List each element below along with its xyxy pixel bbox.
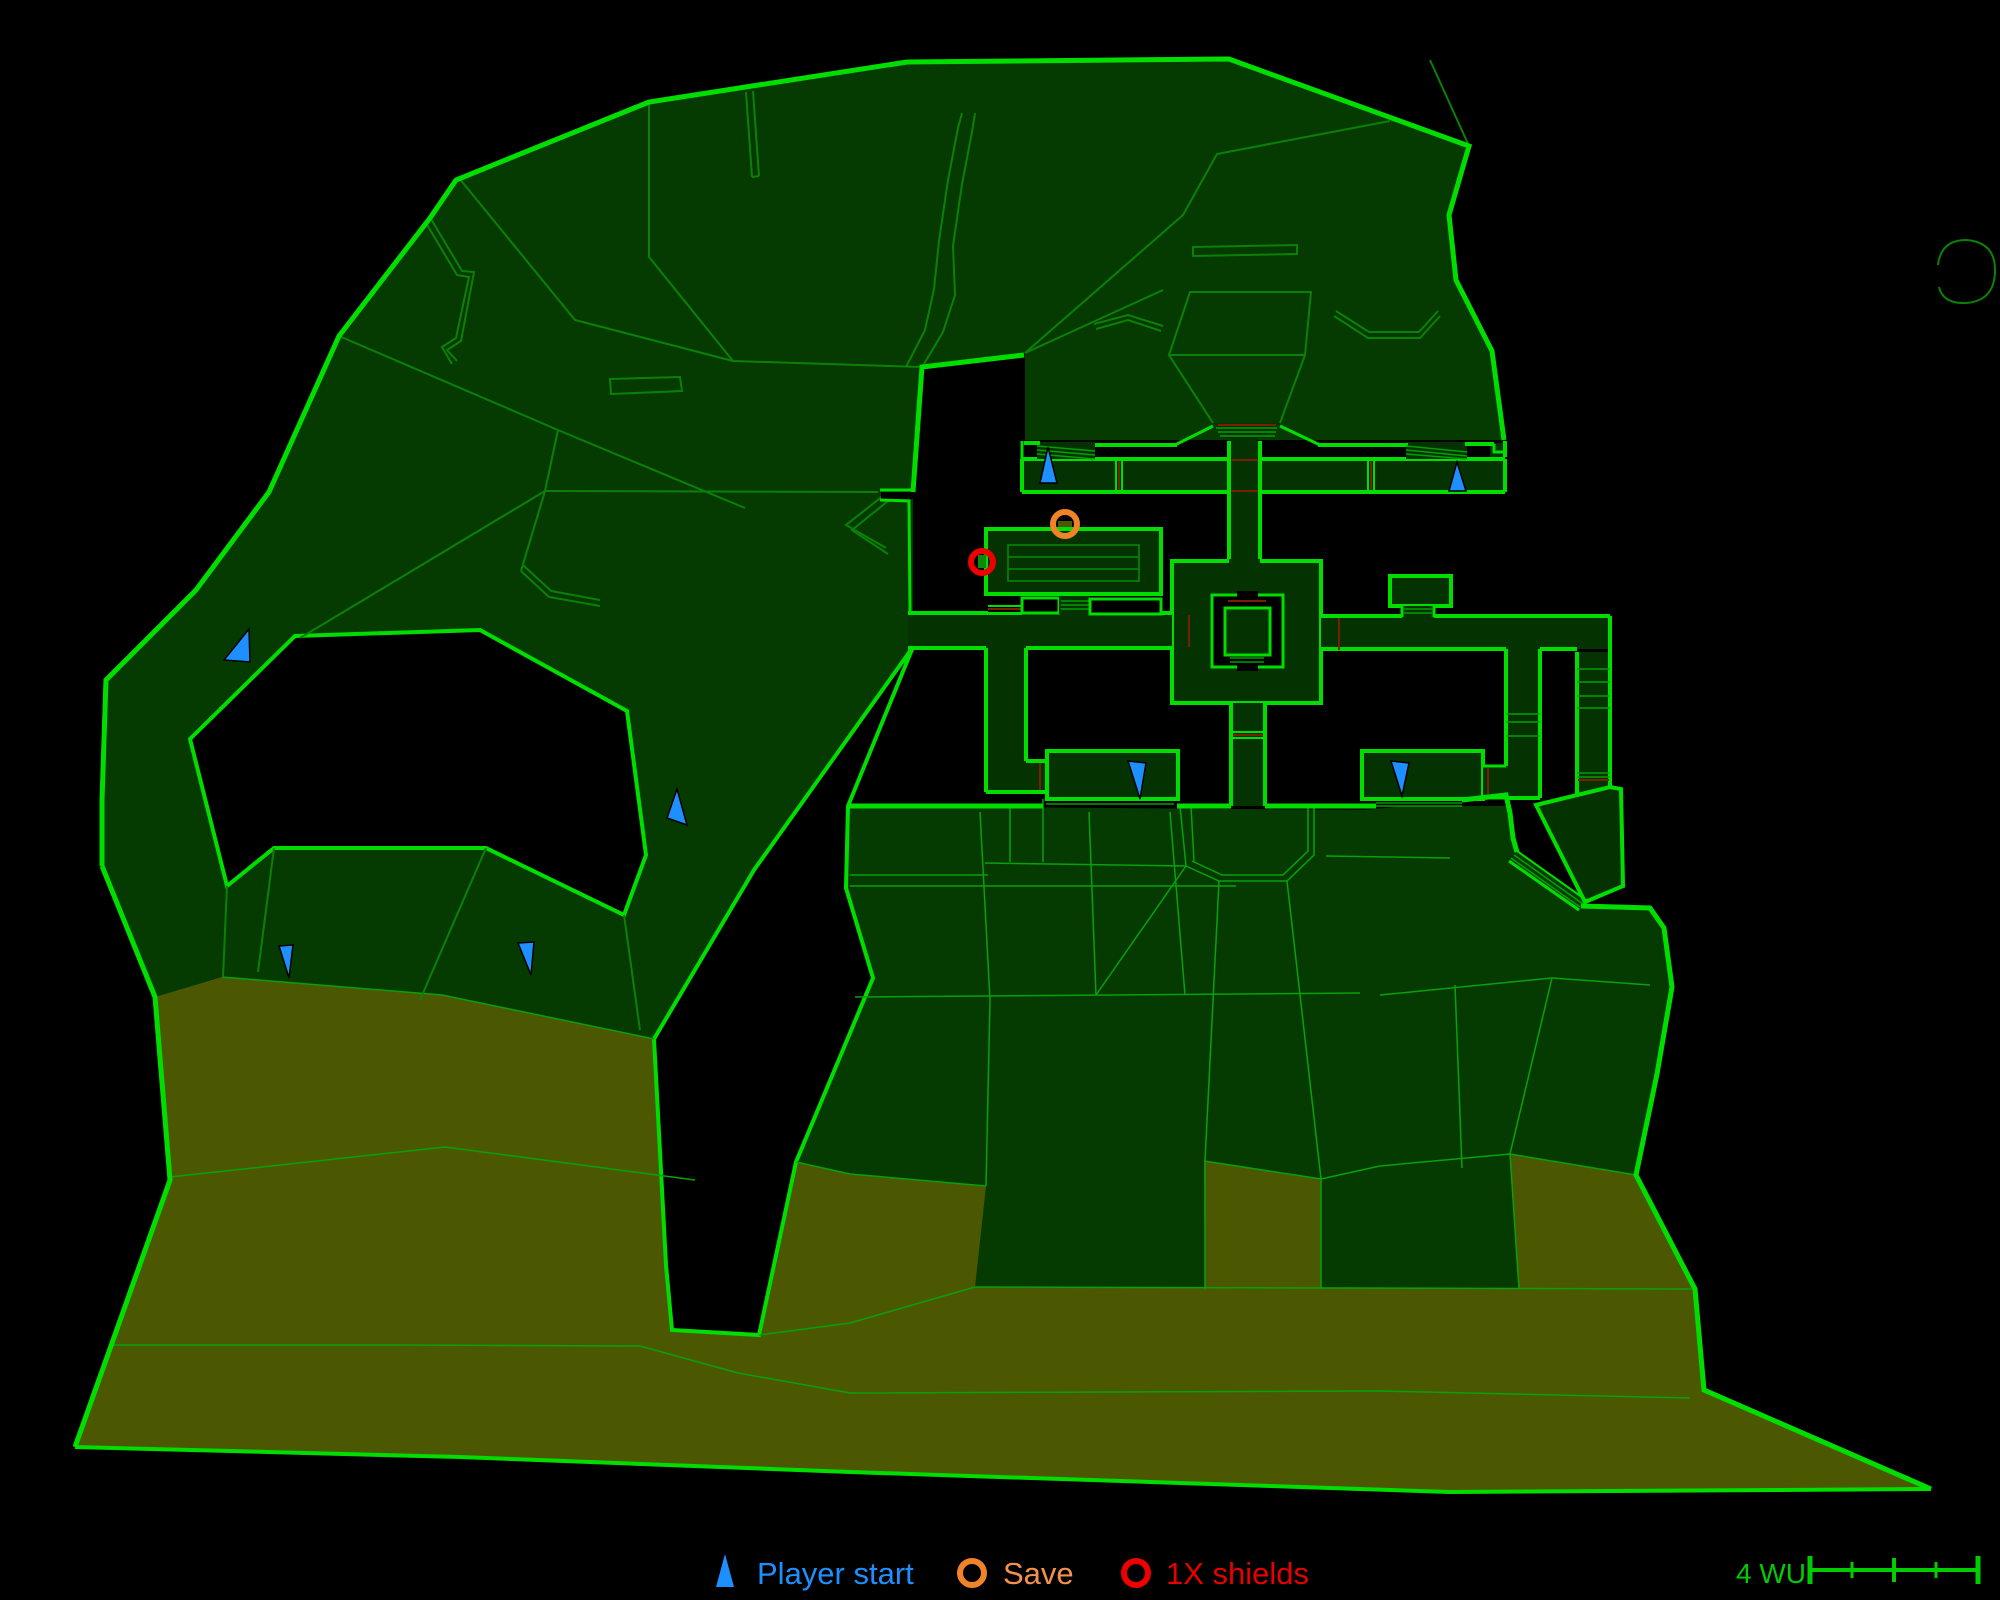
svg-text:4 WU: 4 WU: [1736, 1558, 1806, 1589]
svg-text:Player start: Player start: [757, 1556, 914, 1591]
svg-text:1X shields: 1X shields: [1166, 1556, 1309, 1591]
svg-text:Save: Save: [1003, 1556, 1074, 1591]
